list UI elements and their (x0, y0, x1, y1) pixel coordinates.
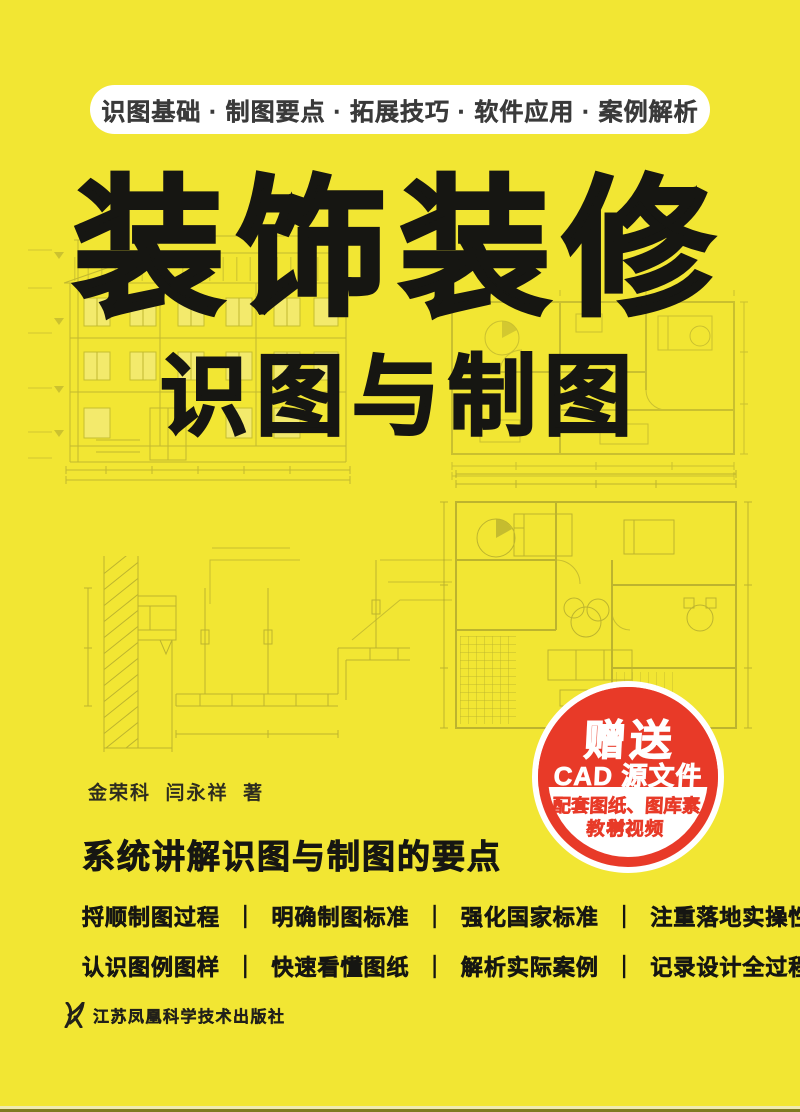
feature-row-2: 认识图例图样 ｜ 快速看懂图纸 ｜ 解析实际案例 ｜ 记录设计全过程 (82, 950, 742, 982)
book-title: 装饰装修 (0, 168, 800, 330)
top-banner-text: 识图基础 · 制图要点 · 拓展技巧 · 软件应用 · 案例解析 (101, 92, 698, 127)
author-names: 金荣科 闫永祥 (88, 783, 229, 804)
promo-badge-disc: 赠送 CAD 源文件 配套图纸、图库素材、 教学视频 (538, 687, 718, 867)
ceiling-section-detail-lower-left (84, 540, 452, 788)
author-role: 著 (243, 783, 264, 804)
feature-row-1: 捋顺制图过程 ｜ 明确制图标准 ｜ 强化国家标准 ｜ 注重落地实操性 (82, 900, 742, 932)
promo-badge: 赠送 CAD 源文件 配套图纸、图库素材、 教学视频 (532, 681, 724, 873)
book-subtitle: 识图与制图 (0, 349, 800, 445)
badge-extras-line2: 教学视频 (538, 817, 716, 840)
publisher-line: 江苏凤凰科学技术出版社 (62, 1002, 286, 1028)
authors-line: 金荣科 闫永祥 著 (88, 778, 264, 805)
top-banner: 识图基础 · 制图要点 · 拓展技巧 · 软件应用 · 案例解析 (90, 85, 710, 134)
badge-cad-label: CAD 源文件 (538, 756, 718, 793)
phoenix-logo-icon (62, 1002, 86, 1028)
promo-badge-text: 赠送 CAD 源文件 配套图纸、图库素材、 教学视频 (538, 687, 718, 867)
book-cover: { "cover": { "banner": { "text": "识图基础 ·… (0, 0, 800, 1112)
selling-headline: 系统讲解识图与制图的要点 (82, 830, 502, 878)
author-suffix-label (229, 783, 244, 804)
publisher-name: 江苏凤凰科学技术出版社 (93, 1003, 286, 1027)
